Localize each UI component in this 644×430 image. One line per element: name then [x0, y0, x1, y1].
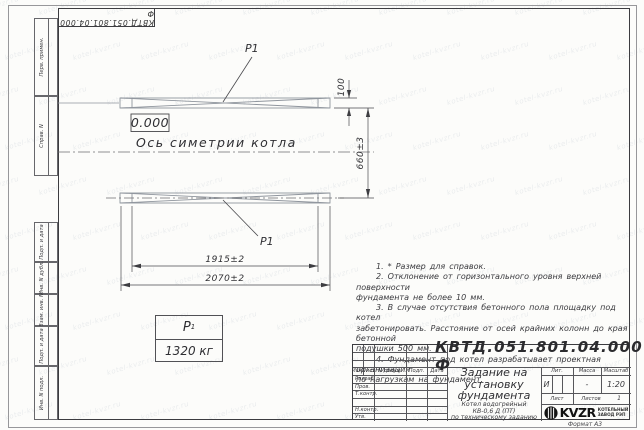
row-label-blank: [355, 398, 375, 406]
mass-header: Масса: [573, 367, 601, 375]
scale-header: Масштаб: [601, 367, 631, 375]
mass-value: -: [573, 375, 601, 393]
beam-top: [58, 98, 330, 108]
elevation-mark: 0.000: [131, 114, 169, 132]
note-line: 1. * Размер для справок.: [356, 262, 634, 272]
kvzr-emblem-icon: [544, 406, 558, 420]
dim-beam-width: 100: [337, 78, 347, 97]
grid-line: [353, 352, 447, 353]
dim-axis-distance: 660±3: [356, 137, 366, 170]
logo-caption-line: ЗАВОД РЭП: [598, 413, 629, 418]
elevation-value: 0.000: [131, 115, 169, 130]
row-label-prov: Пров.: [355, 383, 375, 391]
lit-header: Лит.: [541, 367, 573, 375]
note-line: 3. В случае отсутствия бетонного пола пл…: [356, 303, 634, 324]
leader-p1-bottom: P1: [223, 200, 274, 248]
doc-number: КВТД.051.801.04.000 Ф: [447, 345, 631, 367]
scale-value: 1:20: [601, 375, 631, 393]
grid-line: [562, 375, 563, 393]
dim-outer-span: 2070±2: [205, 274, 244, 284]
doc-subtitle-line: по техническому заданию: [451, 415, 537, 422]
leader-p1-top: P1: [223, 42, 259, 102]
col-header-list: Лист: [363, 367, 374, 375]
logo-caption: КОТЕЛЬНЫЙ ЗАВОД РЭП: [598, 408, 629, 417]
weight-value: 1320 кг: [156, 340, 222, 364]
dimension-spans: 1915±2 2070±2: [121, 206, 330, 291]
part-label-top: P1: [245, 42, 259, 55]
drawing-sheet: kotel-kvzr.rukotel-kvzr.rukotel-kvzr.ruk…: [0, 0, 644, 430]
weight-symbol: P1: [156, 316, 222, 340]
lit-value: И: [541, 375, 552, 393]
grid-line: [552, 375, 553, 393]
weight-symbol-letter: P: [183, 320, 191, 335]
note-line: 2. Отклонение от горизонтального уровня …: [356, 272, 634, 293]
format-label: Формат А3: [540, 421, 630, 428]
title-block: Изм. Лист N докум. Подп. Дата Разраб. Пр…: [352, 344, 630, 420]
company-logo: KVZR КОТЕЛЬНЫЙ ЗАВОД РЭП: [542, 404, 630, 421]
sheets-value: 1: [608, 393, 630, 404]
row-label-nkontr: Н.контр.: [355, 406, 375, 414]
weight-table: P1 1320 кг: [155, 315, 223, 362]
row-label-tkontr: Т.контр.: [355, 390, 375, 398]
col-header-podp: Подп.: [406, 367, 427, 375]
weight-symbol-sub: 1: [191, 323, 195, 331]
col-header-ndocum: N докум.: [374, 367, 406, 375]
grid-line: [353, 360, 447, 361]
dimension-axis-distance: 660±3: [338, 108, 374, 198]
dim-inner-span: 1915±2: [205, 255, 244, 265]
axis-caption: Ось симетрии котла: [136, 135, 297, 150]
row-label-razrab: Разраб.: [355, 375, 375, 383]
sheets-label: Листов: [574, 393, 608, 404]
note-line: фундамента не более 10 мм.: [356, 293, 634, 303]
part-label-bottom: P1: [260, 235, 274, 248]
row-label-utv: Утв.: [355, 413, 375, 421]
sheet-label: Лист: [541, 393, 573, 404]
logo-text: KVZR: [560, 405, 596, 420]
doc-title: Задание на установку фундамента: [447, 368, 541, 401]
doc-subtitle: Котел водогрейный КВ-0,6 Д (ПТ) по техни…: [447, 402, 541, 421]
